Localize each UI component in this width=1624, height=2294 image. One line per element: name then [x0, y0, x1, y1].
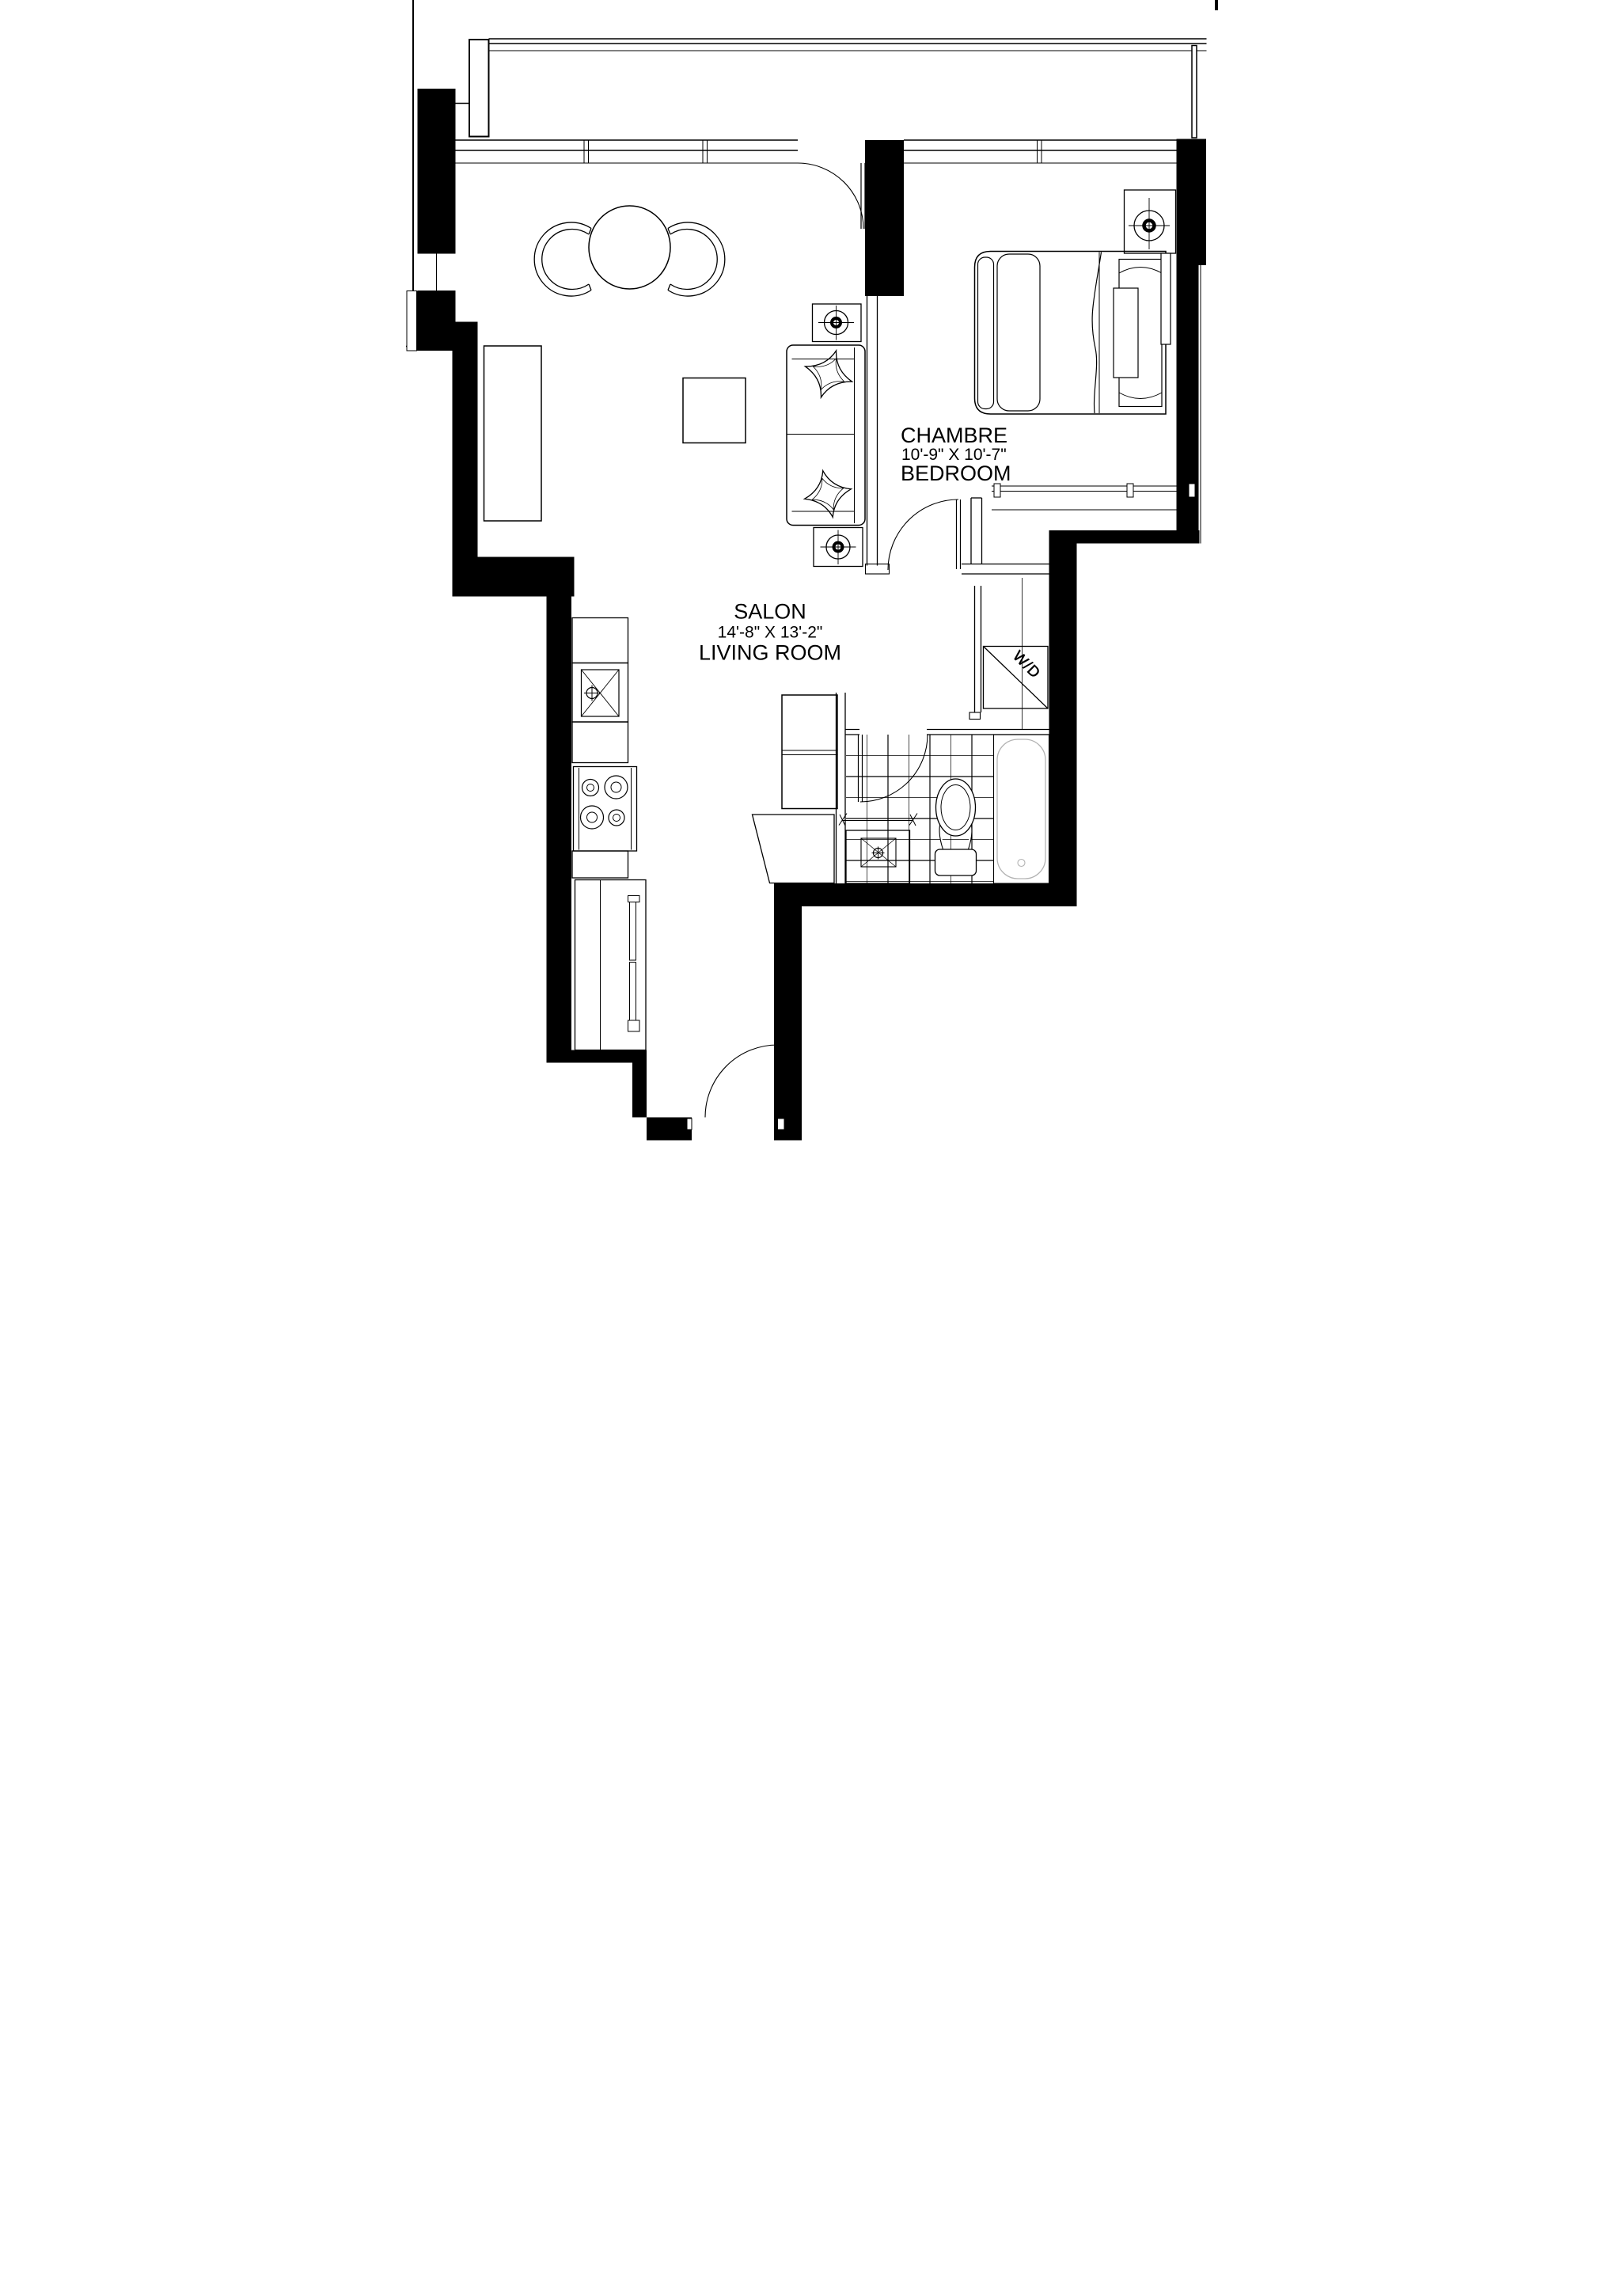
balcony-divider-panel	[1192, 46, 1197, 139]
floor-plan-sheet: W/D	[406, 0, 1218, 1147]
wall-east-upper	[1177, 139, 1207, 266]
wall-east-lower	[1177, 265, 1199, 544]
wall-foyer-west	[632, 1063, 647, 1118]
living-room-dimensions: 14'-8" X 13'-2"	[718, 624, 823, 642]
living-room-label-fr: SALON	[734, 600, 806, 624]
wall-foyer-east	[774, 883, 802, 1141]
bedroom-label-en: BEDROOM	[901, 461, 1011, 485]
toilet-tank	[935, 849, 977, 875]
bed-side-rail	[1161, 253, 1171, 344]
wall-west-mid	[417, 291, 456, 351]
bedroom-label-fr: CHAMBRE	[901, 423, 1007, 447]
wall-west-living	[453, 322, 478, 557]
floor-plan-drawing: W/D	[406, 0, 1218, 1147]
wall-west-kitchen	[547, 574, 572, 1050]
wall-entry-left	[647, 1118, 692, 1141]
wall-kitchen-connector	[547, 1050, 647, 1063]
wall-bath-south	[774, 883, 1077, 906]
wall-west-upper	[418, 89, 456, 253]
west-niche	[407, 291, 417, 351]
wall-pier-living-bedroom	[865, 140, 904, 296]
balcony-column	[469, 40, 489, 137]
toilet	[935, 779, 977, 875]
living-room-label-en: LIVING ROOM	[699, 641, 841, 665]
wall-bath-east	[1049, 530, 1077, 906]
corner-mark	[1215, 0, 1218, 10]
